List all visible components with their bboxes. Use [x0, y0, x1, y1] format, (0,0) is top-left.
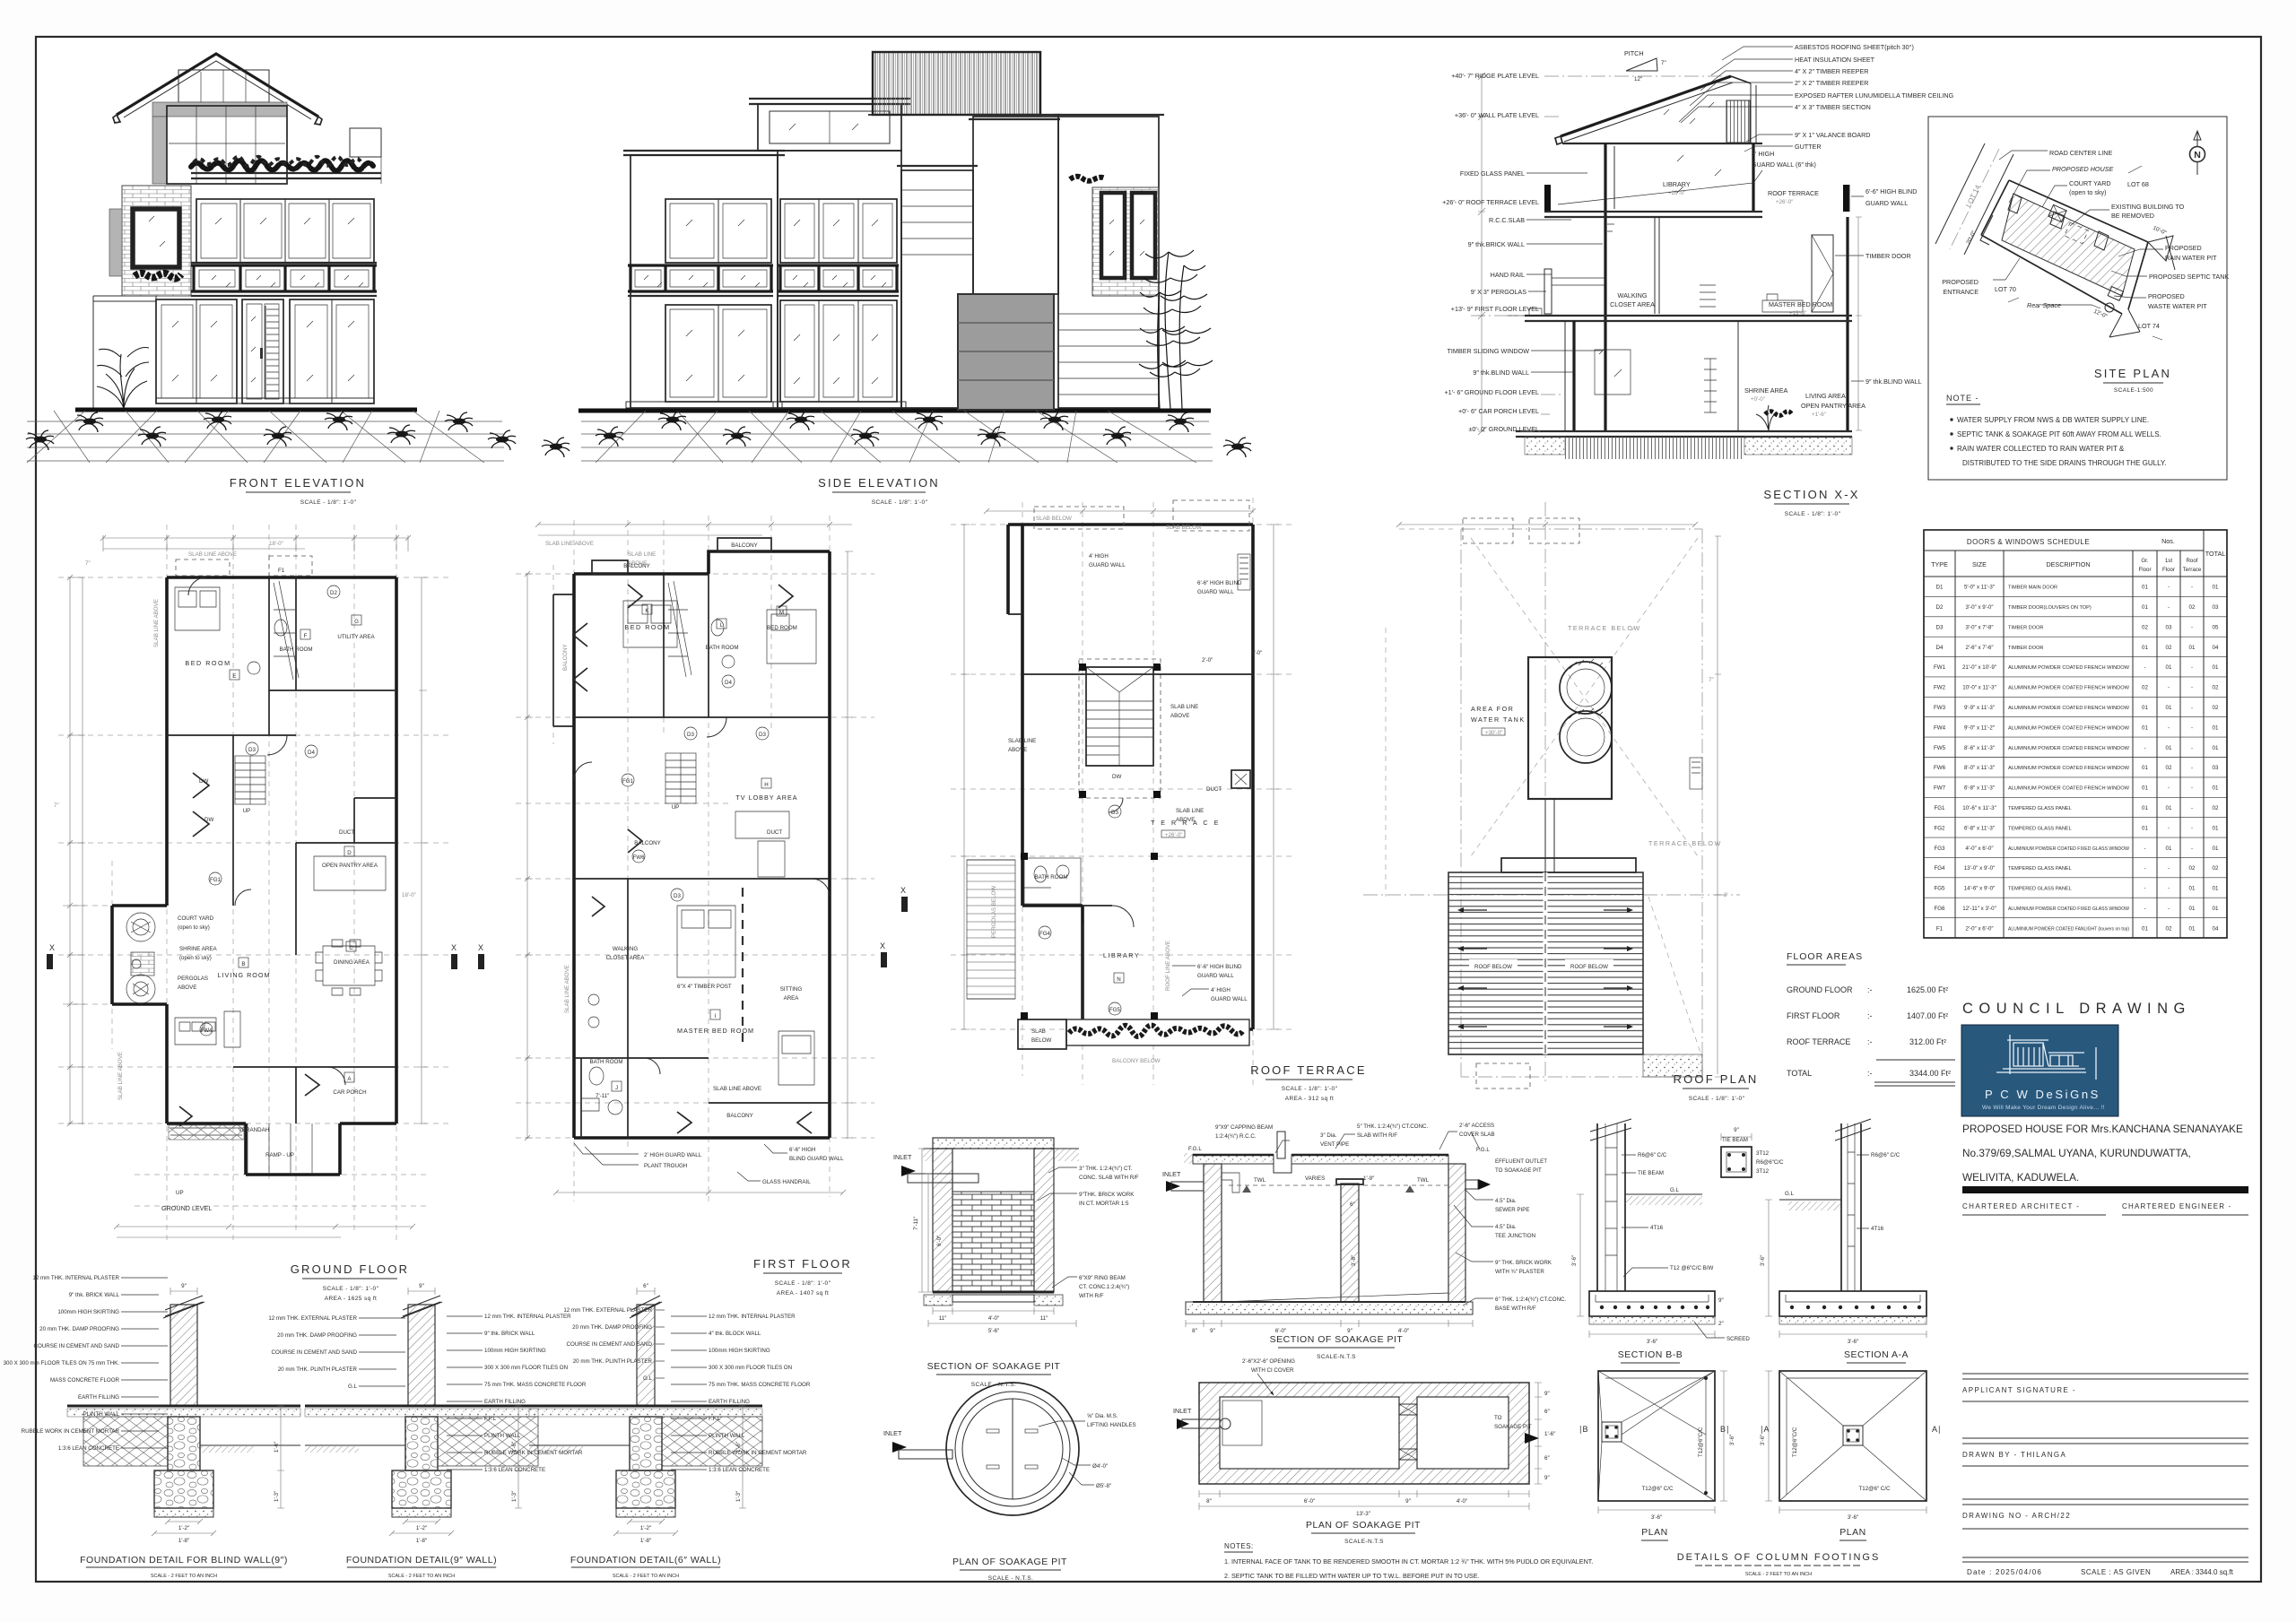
- svg-text:BASE WITH R/F: BASE WITH R/F: [1495, 1305, 1536, 1312]
- svg-text:01: 01: [2142, 724, 2148, 731]
- svg-text:PROPOSED HOUSE: PROPOSED HOUSE: [2052, 165, 2114, 173]
- svg-text:02: 02: [2142, 625, 2148, 631]
- svg-text:WASTE WATER PIT: WASTE WATER PIT: [2148, 302, 2207, 310]
- svg-text:9″ thk.BLIND WALL: 9″ thk.BLIND WALL: [1865, 377, 1922, 386]
- svg-text:F.F.L: F.F.L: [709, 1416, 721, 1422]
- svg-text:FIRST FLOOR: FIRST FLOOR: [753, 1257, 852, 1271]
- svg-text:5′-0″ x 11′-3″: 5′-0″ x 11′-3″: [1964, 585, 1996, 591]
- svg-text:9″ X 1″ VALANCE BOARD: 9″ X 1″ VALANCE BOARD: [1795, 131, 1870, 139]
- svg-text:LIVING ROOM: LIVING ROOM: [218, 971, 271, 979]
- svg-text:1′-6″: 1′-6″: [1544, 1431, 1556, 1437]
- svg-text:20 mm THK. DAMP PROOFING: 20 mm THK. DAMP PROOFING: [39, 1326, 119, 1332]
- svg-text:-: -: [2191, 765, 2193, 771]
- svg-text:ABOVE: ABOVE: [178, 984, 196, 991]
- svg-text:SCALE-N.T.S: SCALE-N.T.S: [1344, 1539, 1384, 1545]
- svg-text:5″ THK. 1:2:4(¾″) CT.CONC.: 5″ THK. 1:2:4(¾″) CT.CONC.: [1357, 1123, 1429, 1130]
- svg-text:BELOW: BELOW: [1031, 1037, 1052, 1044]
- svg-text:DUCT: DUCT: [339, 829, 354, 836]
- svg-text:-: -: [2168, 825, 2170, 831]
- svg-text:GUARD WALL: GUARD WALL: [1197, 973, 1234, 979]
- svg-text:SECTION A-A: SECTION A-A: [1844, 1349, 1909, 1360]
- svg-text:100mm HIGH SKIRTING: 100mm HIGH SKIRTING: [57, 1309, 119, 1315]
- svg-text:SITE PLAN: SITE PLAN: [2094, 367, 2171, 380]
- svg-text:APPLICANT SIGNATURE -: APPLICANT SIGNATURE -: [1962, 1386, 2076, 1394]
- svg-text:01: 01: [2166, 846, 2172, 852]
- svg-text:D: D: [347, 850, 352, 856]
- svg-text:ALUMINIUM POWDER COATED FRENCH: ALUMINIUM POWDER COATED FRENCH WINDOW: [2008, 686, 2130, 691]
- svg-text:4′-0″: 4′-0″: [1398, 1328, 1410, 1334]
- svg-text:TOTAL: TOTAL: [2205, 550, 2226, 558]
- svg-text:1′-3″: 1′-3″: [511, 1490, 517, 1502]
- svg-text:FG3: FG3: [1934, 846, 1945, 852]
- svg-text:SCALE-N.T.S: SCALE-N.T.S: [1317, 1354, 1356, 1360]
- svg-text:SLAB WITH R/F: SLAB WITH R/F: [1357, 1132, 1397, 1139]
- svg-text:DRAWING NO - ARCH/22: DRAWING NO - ARCH/22: [1962, 1512, 2071, 1520]
- svg-text:3′-6″: 3′-6″: [1647, 1339, 1658, 1345]
- svg-text:ROOF PLAN: ROOF PLAN: [1674, 1072, 1759, 1086]
- svg-text:GUARD WALL: GUARD WALL: [1197, 589, 1234, 595]
- svg-text:T12@6″ C/C: T12@6″ C/C: [1642, 1486, 1674, 1492]
- svg-text:ENTRANCE: ENTRANCE: [1943, 288, 1979, 296]
- svg-text:We Will Make Your Dream Design: We Will Make Your Dream Design Alive... …: [1982, 1105, 2105, 1111]
- svg-text:-: -: [2144, 846, 2145, 852]
- svg-text:R6@6″C/C: R6@6″C/C: [1756, 1159, 1784, 1166]
- svg-text:2′-0″: 2′-0″: [1251, 650, 1263, 656]
- svg-text:CLOSET AREA: CLOSET AREA: [1610, 300, 1655, 308]
- svg-text:7′-11″: 7′-11″: [596, 1093, 610, 1099]
- svg-text:1′-6″: 1′-6″: [274, 1441, 280, 1453]
- svg-text:300 X 300 mm FLOOR TILES ON: 300 X 300 mm FLOOR TILES ON: [709, 1365, 792, 1371]
- svg-text:6′-6″ HIGH BLIND: 6′-6″ HIGH BLIND: [1865, 187, 1917, 195]
- svg-text:2′-0″: 2′-0″: [1202, 657, 1213, 664]
- svg-text:NOTE -: NOTE -: [1946, 394, 1979, 403]
- svg-text:1st: 1st: [2165, 558, 2173, 564]
- svg-text:WITH R/F: WITH R/F: [1079, 1293, 1104, 1299]
- svg-text:PLINTH WALL: PLINTH WALL: [709, 1433, 745, 1439]
- svg-text:Nos.: Nos.: [2161, 537, 2175, 545]
- svg-text:6″: 6″: [1544, 1409, 1550, 1415]
- svg-text:I: I: [715, 1013, 717, 1019]
- svg-text:PLAN: PLAN: [1839, 1527, 1865, 1538]
- svg-text:1′-3″: 1′-3″: [735, 1490, 742, 1502]
- svg-text:PLINTH WALL: PLINTH WALL: [484, 1433, 521, 1439]
- svg-text:DISTRIBUTED TO THE SIDE DRAINS: DISTRIBUTED TO THE SIDE DRAINS THROUGH T…: [1962, 459, 2166, 467]
- svg-text:GUARD WALL: GUARD WALL: [1089, 562, 1126, 568]
- svg-text:G.L: G.L: [643, 1375, 653, 1382]
- svg-text:2′-6″ ACCESS: 2′-6″ ACCESS: [1459, 1123, 1494, 1129]
- svg-text:TIE BEAM: TIE BEAM: [1638, 1170, 1664, 1176]
- svg-text:01: 01: [2142, 825, 2148, 831]
- svg-text:F1: F1: [278, 568, 285, 574]
- svg-text:12 mm THK. EXTERNAL PLASTER: 12 mm THK. EXTERNAL PLASTER: [268, 1315, 357, 1322]
- svg-text:9″ thk.BLIND WALL: 9″ thk.BLIND WALL: [1473, 369, 1529, 377]
- svg-text:AREA - 1625 sq ft: AREA - 1625 sq ft: [325, 1296, 377, 1302]
- svg-text:ALUMINIUM POWDER COATED FIXED: ALUMINIUM POWDER COATED FIXED GLASS WIND…: [2008, 906, 2130, 912]
- svg-text:ALUMINIUM POWDER COATED FRENCH: ALUMINIUM POWDER COATED FRENCH WINDOW: [2008, 665, 2130, 671]
- svg-text:R6@6″ C/C: R6@6″ C/C: [1638, 1152, 1667, 1158]
- svg-text:UP: UP: [176, 1190, 184, 1196]
- svg-text:SECTION X-X: SECTION X-X: [1763, 488, 1859, 501]
- svg-text:7″: 7″: [54, 802, 59, 809]
- svg-text:PLAN OF SOAKAGE PIT: PLAN OF SOAKAGE PIT: [952, 1557, 1067, 1567]
- svg-text:-: -: [2191, 705, 2193, 711]
- svg-text:7″: 7″: [85, 560, 91, 567]
- svg-text:X: X: [451, 943, 457, 952]
- svg-text:AREA - 1407 sq ft: AREA - 1407 sq ft: [777, 1290, 829, 1297]
- svg-text:D1: D1: [1936, 585, 1944, 591]
- svg-text:DESCRIPTION: DESCRIPTION: [2046, 560, 2090, 568]
- svg-text:-: -: [2191, 785, 2193, 792]
- svg-text:+36′- 0″ WALL PLATE LEVEL: +36′- 0″ WALL PLATE LEVEL: [1455, 111, 1539, 119]
- svg-text:9″ THK. BRICK WORK: 9″ THK. BRICK WORK: [1495, 1260, 1552, 1266]
- svg-text:BATH ROOM: BATH ROOM: [589, 1059, 622, 1065]
- svg-text:9″: 9″: [1405, 1498, 1411, 1505]
- svg-text:6″: 6″: [1350, 1201, 1355, 1208]
- svg-text:FG1: FG1: [1934, 805, 1945, 811]
- svg-text:SOAKAGE PIT: SOAKAGE PIT: [1494, 1424, 1532, 1430]
- svg-text:PROPOSED SEPTIC TANK: PROPOSED SEPTIC TANK: [2149, 273, 2229, 281]
- svg-text:TERRACE BELOW: TERRACE BELOW: [1568, 624, 1641, 632]
- svg-text:EARTH FILLING: EARTH FILLING: [484, 1399, 526, 1405]
- svg-text:3′-6″: 3′-6″: [1848, 1339, 1859, 1345]
- svg-text:SCALE - 2 FEET TO AN INCH: SCALE - 2 FEET TO AN INCH: [1745, 1572, 1812, 1577]
- svg-text:Gr.: Gr.: [2141, 558, 2149, 564]
- svg-text:TIMBER DOOR: TIMBER DOOR: [1865, 252, 1911, 260]
- svg-text:-: -: [2144, 886, 2145, 892]
- svg-text:1′-8″: 1′-8″: [416, 1538, 428, 1544]
- svg-text:01: 01: [2213, 585, 2219, 591]
- svg-text:CHARTERED ARCHITECT -: CHARTERED ARCHITECT -: [1962, 1202, 2080, 1210]
- svg-text:VARIES: VARIES: [1305, 1175, 1325, 1182]
- svg-text:ROOF BELOW: ROOF BELOW: [1474, 964, 1512, 970]
- svg-text:GROUND FLOOR: GROUND FLOOR: [291, 1262, 410, 1276]
- svg-text:ALUMINIUM POWDER COATED FRENCH: ALUMINIUM POWDER COATED FRENCH WINDOW: [2008, 706, 2130, 711]
- svg-text:X: X: [900, 886, 906, 895]
- svg-text:ABOVE: ABOVE: [628, 560, 647, 567]
- svg-text:SCALE - N.T.S.: SCALE - N.T.S.: [988, 1575, 1033, 1582]
- svg-text:3′-6″: 3′-6″: [1760, 1254, 1766, 1266]
- svg-text:TEMPERED GLASS PANEL: TEMPERED GLASS PANEL: [2008, 806, 2072, 811]
- svg-text:01: 01: [2213, 906, 2219, 912]
- svg-text:SCALE : AS GIVEN: SCALE : AS GIVEN: [2081, 1568, 2151, 1576]
- svg-text:SECTION B-B: SECTION B-B: [1618, 1349, 1683, 1360]
- svg-text:18′-0″: 18′-0″: [402, 892, 417, 898]
- svg-text:F.F.L: F.F.L: [484, 1416, 497, 1422]
- svg-text:7″: 7″: [1709, 677, 1714, 683]
- svg-text:9″: 9″: [1210, 1328, 1215, 1334]
- svg-text:BATH ROOM: BATH ROOM: [705, 645, 738, 651]
- svg-text:A∣: A∣: [1932, 1425, 1942, 1434]
- svg-text:PLAN: PLAN: [1641, 1527, 1667, 1538]
- svg-text:SCALE - 1/8″: 1′-0″: SCALE - 1/8″: 1′-0″: [1282, 1086, 1338, 1092]
- svg-text:DOORS & WINDOWS SCHEDULE: DOORS & WINDOWS SCHEDULE: [1967, 538, 2090, 546]
- svg-text:-: -: [2168, 685, 2170, 691]
- svg-text:R6@6″ C/C: R6@6″ C/C: [1871, 1152, 1900, 1158]
- svg-text:100mm HIGH SKIRTING: 100mm HIGH SKIRTING: [484, 1348, 546, 1354]
- svg-text:1:2:4(¾″) R.C.C.: 1:2:4(¾″) R.C.C.: [1215, 1133, 1257, 1140]
- svg-text:12 mm THK. INTERNAL PLASTER: 12 mm THK. INTERNAL PLASTER: [709, 1314, 796, 1320]
- svg-text:BED ROOM: BED ROOM: [767, 625, 797, 631]
- svg-text:FG5: FG5: [1934, 886, 1945, 892]
- svg-text:COURSE IN CEMENT AND SAND: COURSE IN CEMENT AND SAND: [272, 1349, 358, 1356]
- svg-text:1′-8″: 1′-8″: [640, 1538, 652, 1544]
- svg-text:Ø5′-8″: Ø5′-8″: [1096, 1483, 1112, 1489]
- svg-text:02: 02: [2166, 765, 2172, 771]
- svg-text:TV LOBBY AREA: TV LOBBY AREA: [735, 794, 797, 802]
- svg-text:4′-0″: 4′-0″: [1457, 1498, 1468, 1505]
- svg-text:D3: D3: [687, 732, 694, 738]
- svg-text:COURT YARD: COURT YARD: [178, 915, 214, 922]
- svg-text:ABOVE: ABOVE: [1170, 713, 1189, 719]
- svg-text:-: -: [2191, 625, 2193, 631]
- svg-text:9″: 9″: [1718, 1297, 1724, 1304]
- svg-text:DETAILS OF COLUMN FOOTINGS: DETAILS OF COLUMN FOOTINGS: [1677, 1552, 1881, 1563]
- svg-text:4′ HIGH: 4′ HIGH: [1211, 987, 1231, 993]
- svg-text:4.5″ Dia.: 4.5″ Dia.: [1495, 1198, 1517, 1204]
- svg-text:BATH ROOM: BATH ROOM: [279, 646, 312, 653]
- svg-text:SLAB LINE ABOVE: SLAB LINE ABOVE: [117, 1052, 124, 1100]
- svg-text:BALCONY BELOW: BALCONY BELOW: [1112, 1058, 1161, 1064]
- svg-text:+0′-0″: +0′-0″: [1751, 396, 1766, 403]
- svg-text:4′ HIGH: 4′ HIGH: [1752, 150, 1774, 158]
- svg-text:02: 02: [2142, 685, 2148, 691]
- svg-text:∣A: ∣A: [1760, 1425, 1770, 1434]
- svg-text:1′-2″: 1′-2″: [178, 1525, 190, 1531]
- svg-text:MASS CONCRETE FLOOR: MASS CONCRETE FLOOR: [50, 1377, 120, 1383]
- svg-text:LIFTING HANDLES: LIFTING HANDLES: [1087, 1422, 1136, 1428]
- svg-text:SECTION OF SOAKAGE PIT: SECTION OF SOAKAGE PIT: [1270, 1334, 1404, 1345]
- svg-text:14′-6″ x 9′-0″: 14′-6″ x 9′-0″: [1964, 886, 1996, 892]
- svg-text:(open to sky): (open to sky): [179, 955, 212, 961]
- svg-text:02: 02: [2213, 685, 2219, 691]
- svg-text:BED ROOM: BED ROOM: [185, 659, 230, 667]
- svg-text:TYPE: TYPE: [1931, 560, 1948, 568]
- svg-text:FG6: FG6: [1934, 906, 1945, 912]
- svg-text:+13′- 9″ FIRST FLOOR LEVEL: +13′- 9″ FIRST FLOOR LEVEL: [1451, 305, 1539, 313]
- svg-text:12″: 12″: [1634, 76, 1643, 82]
- svg-text:-: -: [2144, 664, 2145, 671]
- svg-text:AREA - 312 sq ft: AREA - 312 sq ft: [1285, 1096, 1334, 1102]
- svg-text:CT. CONC.1:2:4(¾″): CT. CONC.1:2:4(¾″): [1079, 1284, 1129, 1290]
- svg-text:01: 01: [2213, 825, 2219, 831]
- svg-text:8″: 8″: [1192, 1328, 1197, 1334]
- svg-text:6′-8″ x 11′-3″: 6′-8″ x 11′-3″: [1964, 785, 1996, 792]
- svg-text:20 mm THK. PLINTH PLASTER: 20 mm THK. PLINTH PLASTER: [573, 1358, 653, 1365]
- svg-text:SLAB BELOW: SLAB BELOW: [1036, 516, 1072, 522]
- svg-text:FG5: FG5: [1109, 1007, 1121, 1013]
- svg-text:10′-0″ x 11′-3″: 10′-0″ x 11′-3″: [1962, 685, 1996, 691]
- svg-text:TO: TO: [1494, 1415, 1502, 1421]
- svg-text:RAIN WATER PIT: RAIN WATER PIT: [2165, 254, 2217, 262]
- svg-text:20 mm THK. DAMP PROOFING: 20 mm THK. DAMP PROOFING: [572, 1324, 652, 1331]
- svg-text:CLOSET AREA: CLOSET AREA: [606, 955, 646, 961]
- svg-text:Roof: Roof: [2186, 558, 2197, 564]
- svg-text:PLINTH WALL: PLINTH WALL: [83, 1411, 120, 1418]
- svg-text:X: X: [880, 941, 885, 950]
- svg-text:G: G: [354, 619, 359, 625]
- svg-text:G.L: G.L: [348, 1383, 358, 1390]
- svg-text:(open to sky): (open to sky): [2069, 188, 2107, 196]
- svg-text:9′ X 3″ PERGOLAS: 9′ X 3″ PERGOLAS: [1471, 288, 1526, 296]
- svg-text:2′-6″ x 7′-6″: 2′-6″ x 7′-6″: [1965, 645, 1994, 651]
- svg-text:ALUMINIUM POWDER COATED FRENCH: ALUMINIUM POWDER COATED FRENCH WINDOW: [2008, 725, 2130, 731]
- svg-text:1:3:6 LEAN CONCRETE: 1:3:6 LEAN CONCRETE: [709, 1467, 770, 1473]
- svg-text:N: N: [1117, 976, 1120, 983]
- svg-text:SCALE - 1/8″: 1′-0″: SCALE - 1/8″: 1′-0″: [300, 499, 357, 506]
- svg-text:HEAT INSULATION SHEET: HEAT INSULATION SHEET: [1795, 56, 1875, 64]
- svg-text:ALUMINIUM POWDER COATED FRENCH: ALUMINIUM POWDER COATED FRENCH WINDOW: [2008, 786, 2130, 792]
- svg-text:SCALE - 1/8″: 1′-0″: SCALE - 1/8″: 1′-0″: [323, 1286, 379, 1292]
- svg-text:F1: F1: [1936, 925, 1944, 932]
- svg-text:RAIN WATER COLLECTED TO RAIN W: RAIN WATER COLLECTED TO RAIN WATER PIT &: [1957, 445, 2125, 453]
- svg-text:SLAB LINE ABOVE: SLAB LINE ABOVE: [188, 551, 237, 558]
- svg-text:4.5″ Dia.: 4.5″ Dia.: [1495, 1224, 1517, 1230]
- svg-text:300 X 300 mm FLOOR TILES ON 75: 300 X 300 mm FLOOR TILES ON 75 mm THK.: [4, 1360, 120, 1366]
- svg-text:12′-11″ x 3′-0″: 12′-11″ x 3′-0″: [1962, 906, 1996, 912]
- svg-text:3′-6″: 3′-6″: [1651, 1514, 1663, 1521]
- svg-text:HAND RAIL: HAND RAIL: [1491, 271, 1525, 279]
- svg-text:DUCT: DUCT: [767, 829, 782, 836]
- svg-text:2′-6″X2′-6″ OPENING: 2′-6″X2′-6″ OPENING: [1242, 1358, 1295, 1365]
- svg-text:TERRACE BELOW: TERRACE BELOW: [1648, 839, 1722, 847]
- svg-text:ROOF TERRACE: ROOF TERRACE: [1768, 189, 1819, 197]
- svg-text:ROOF TERRACE: ROOF TERRACE: [1250, 1063, 1366, 1077]
- svg-text:LIBRARY: LIBRARY: [1663, 180, 1691, 188]
- svg-text:12 mm THK. INTERNAL PLASTER: 12 mm THK. INTERNAL PLASTER: [32, 1275, 119, 1281]
- svg-text:01: 01: [2189, 886, 2196, 892]
- svg-text:B: B: [241, 961, 245, 967]
- svg-text:3′-0″ x 7′-8″: 3′-0″ x 7′-8″: [1965, 625, 1994, 631]
- svg-text:SCALE - 1/8″: 1′-0″: SCALE - 1/8″: 1′-0″: [775, 1280, 831, 1287]
- svg-text:312.00 Ft²: 312.00 Ft²: [1909, 1037, 1946, 1046]
- svg-text:8′-6″ x 11′-3″: 8′-6″ x 11′-3″: [1964, 745, 1996, 751]
- svg-text:ASBESTOS ROOFING SHEET(pitch 3: ASBESTOS ROOFING SHEET(pitch 30°): [1795, 43, 1914, 51]
- svg-text:SCALE - 1/8″: 1′-0″: SCALE - 1/8″: 1′-0″: [1689, 1096, 1745, 1102]
- svg-text:SCALE - 1/8″: 1′-0″: SCALE - 1/8″: 1′-0″: [872, 499, 928, 506]
- svg-text:SHRINE AREA: SHRINE AREA: [179, 946, 217, 952]
- svg-text:GROUND LEVEL: GROUND LEVEL: [161, 1204, 212, 1212]
- svg-text:03: 03: [2166, 625, 2172, 631]
- svg-text:SCALE - 1/8″: 1′-0″: SCALE - 1/8″: 1′-0″: [1785, 511, 1841, 517]
- svg-text:PROPOSED: PROPOSED: [2165, 244, 2202, 252]
- svg-text:+26′-0″: +26′-0″: [1776, 199, 1794, 205]
- svg-text:13′-3″: 13′-3″: [1356, 1511, 1371, 1517]
- svg-text:BATH ROOM: BATH ROOM: [1034, 874, 1067, 880]
- svg-text:02: 02: [2213, 865, 2219, 872]
- svg-text:3′-6″: 3′-6″: [1571, 1254, 1578, 1266]
- svg-text:3344.00 Ft²: 3344.00 Ft²: [1909, 1069, 1951, 1078]
- svg-text:DW: DW: [1112, 774, 1121, 780]
- svg-text:UTILITY AREA: UTILITY AREA: [337, 634, 375, 640]
- svg-text:01: 01: [2166, 745, 2172, 751]
- svg-text:+26′-0″: +26′-0″: [1165, 832, 1183, 838]
- svg-text:9″: 9″: [1544, 1391, 1550, 1397]
- svg-text:75 mm THK. MASS CONCRETE FLOOR: 75 mm THK. MASS CONCRETE FLOOR: [484, 1382, 587, 1388]
- svg-text:WITH ¾″ PLASTER: WITH ¾″ PLASTER: [1495, 1269, 1544, 1275]
- svg-text:GUTTER: GUTTER: [1795, 143, 1822, 151]
- svg-text:X: X: [478, 943, 483, 952]
- svg-text:6′-6″ HIGH BLIND: 6′-6″ HIGH BLIND: [1197, 580, 1242, 586]
- svg-text:+30′-0″: +30′-0″: [1485, 730, 1503, 736]
- svg-text:-: -: [2144, 906, 2145, 912]
- svg-text:-: -: [2191, 724, 2193, 731]
- svg-text:6′-8″ x 11′-3″: 6′-8″ x 11′-3″: [1964, 825, 1996, 831]
- svg-text:LOT 68: LOT 68: [2127, 180, 2149, 188]
- svg-text:8′-0″ x 11′-3″: 8′-0″ x 11′-3″: [1964, 765, 1996, 771]
- svg-text:3′-0″ x 9′-0″: 3′-0″ x 9′-0″: [1965, 604, 1994, 611]
- svg-text:INLET: INLET: [1162, 1170, 1181, 1178]
- svg-text:GUARD WALL: GUARD WALL: [1865, 199, 1908, 207]
- svg-text:WALKING: WALKING: [613, 946, 638, 952]
- svg-text:9″: 9″: [419, 1283, 424, 1289]
- svg-text:TEE JUNCTION: TEE JUNCTION: [1495, 1233, 1535, 1239]
- svg-text:2′ HIGH GUARD WALL: 2′ HIGH GUARD WALL: [644, 1152, 702, 1158]
- svg-text:13′-0″ x 9′-0″: 13′-0″ x 9′-0″: [1964, 865, 1996, 872]
- svg-text::-: :-: [1867, 1011, 1873, 1020]
- svg-text:PROPOSED: PROPOSED: [1942, 278, 1979, 286]
- svg-text:+26′- 0″ ROOF TERRACE LEVEL: +26′- 0″ ROOF TERRACE LEVEL: [1442, 198, 1539, 206]
- svg-text:C: C: [349, 945, 353, 951]
- svg-text:FIRST FLOOR: FIRST FLOOR: [1787, 1011, 1840, 1020]
- svg-text:WALKING: WALKING: [1618, 291, 1648, 299]
- svg-text:2″ X 2″ TIMBER REEPER: 2″ X 2″ TIMBER REEPER: [1795, 79, 1868, 87]
- svg-text:PLANT TROUGH: PLANT TROUGH: [644, 1163, 687, 1169]
- svg-text:-: -: [2191, 846, 2193, 852]
- svg-text:20 mm THK. PLINTH PLASTER: 20 mm THK. PLINTH PLASTER: [278, 1366, 358, 1373]
- svg-text:-: -: [2191, 685, 2193, 691]
- svg-text:PLAN OF SOAKAGE PIT: PLAN OF SOAKAGE PIT: [1306, 1520, 1421, 1531]
- svg-text:BED ROOM: BED ROOM: [624, 623, 670, 631]
- svg-text:1. INTERNAL FACE OF TANK TO BE: 1. INTERNAL FACE OF TANK TO BE RENDERED …: [1224, 1557, 1593, 1566]
- svg-text:UP: UP: [672, 804, 680, 811]
- svg-text:INLET: INLET: [883, 1429, 902, 1437]
- svg-text:SCALE - 2 FEET TO AN INCH: SCALE - 2 FEET TO AN INCH: [613, 1574, 679, 1579]
- svg-text:18′-0″: 18′-0″: [269, 541, 284, 547]
- svg-text:9″X9″ CAPPING BEAM: 9″X9″ CAPPING BEAM: [1215, 1124, 1273, 1131]
- svg-text:02: 02: [2213, 805, 2219, 811]
- svg-text:T12@6″C/C: T12@6″C/C: [1698, 1427, 1704, 1457]
- svg-text:D4: D4: [308, 750, 315, 756]
- svg-text:D3: D3: [674, 893, 681, 899]
- svg-text:D4: D4: [1936, 645, 1944, 651]
- svg-text:CAR PORCH: CAR PORCH: [333, 1089, 366, 1096]
- svg-text:-: -: [2144, 865, 2145, 872]
- svg-text:6″X 4″ TIMBER POST: 6″X 4″ TIMBER POST: [677, 984, 732, 990]
- svg-text:3T12: 3T12: [1756, 1168, 1770, 1175]
- svg-text:N: N: [2194, 150, 2201, 160]
- svg-text:-: -: [2168, 604, 2170, 611]
- svg-text:ROOF LINE ABOVE: ROOF LINE ABOVE: [1165, 941, 1171, 991]
- svg-text::-: :-: [1867, 1037, 1873, 1046]
- svg-text:-: -: [2168, 886, 2170, 892]
- svg-text:SCREED: SCREED: [1726, 1336, 1750, 1342]
- svg-text:9″THK. BRICK WORK: 9″THK. BRICK WORK: [1079, 1192, 1135, 1198]
- svg-text:Floor: Floor: [2138, 567, 2151, 573]
- svg-text:01: 01: [2189, 925, 2196, 932]
- svg-text:UP: UP: [243, 808, 251, 814]
- svg-text:TIMBER DOOR: TIMBER DOOR: [2008, 646, 2043, 651]
- svg-text:-: -: [2168, 785, 2170, 792]
- svg-text:INLET: INLET: [1173, 1407, 1192, 1415]
- svg-text:SLAB LINE ABOVE: SLAB LINE ABOVE: [713, 1086, 761, 1092]
- svg-text:SITTING: SITTING: [780, 986, 803, 993]
- svg-text:SIZE: SIZE: [1972, 560, 1987, 568]
- svg-text:6′-0″: 6′-0″: [1304, 1498, 1316, 1505]
- svg-text::-: :-: [1867, 985, 1873, 994]
- svg-text:9″: 9″: [1544, 1475, 1550, 1481]
- svg-text:CHARTERED ENGINEER -: CHARTERED ENGINEER -: [2122, 1202, 2232, 1210]
- svg-text:FRONT ELEVATION: FRONT ELEVATION: [230, 476, 366, 490]
